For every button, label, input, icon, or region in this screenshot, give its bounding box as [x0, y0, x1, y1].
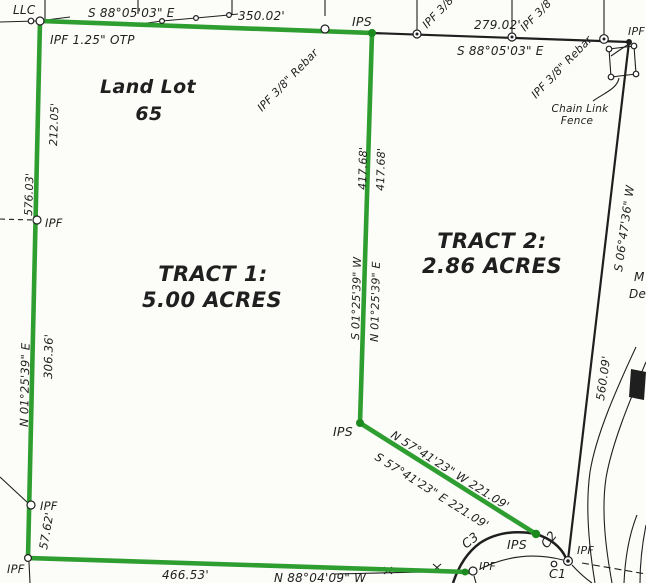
distance-306-label: 306.36' [41, 334, 56, 379]
distance-466-label: 466.53' [162, 568, 209, 582]
rebar-top-west-label: IPF 3/8" Rebar [255, 45, 322, 114]
bearing-left-label: N 01°25'39" E [17, 342, 33, 427]
curve-c2-label: C2 [538, 528, 560, 551]
chain-link-label-1: Chain Link [552, 103, 610, 115]
edge-text-m: M [634, 270, 645, 284]
bearing-bottom-label: N 88°04'09" W [274, 571, 367, 583]
ips-bottom-label: IPS [507, 537, 527, 552]
curve-c3-label: C3 [459, 529, 482, 551]
ipf-bottom-left-label: IPF [7, 562, 25, 576]
distance-5762-label: 57.62' [36, 511, 56, 550]
tract2-area: 2.86 ACRES [422, 254, 562, 278]
edge-text-de: De [629, 287, 646, 301]
distance-576-label: 576.03' [22, 173, 36, 216]
survey-plat-canvas: LLC S 88°05'03" E 350.02' IPF 1.25" OTP … [0, 0, 646, 583]
tract1-area: 5.00 ACRES [142, 288, 282, 312]
ipf-otp-label: IPF 1.25" OTP [50, 33, 135, 47]
distance-417-west-label: 417.68' [356, 147, 370, 190]
distance-top-west-label: 350.02' [238, 9, 285, 23]
adjoiner-llc-label: LLC [13, 3, 36, 17]
bearing-top-west-label: S 88°05'03" E [88, 6, 175, 20]
distance-top-east-label: 279.02' [474, 18, 521, 32]
curve-c1-label: C1 [549, 566, 566, 581]
ipf38-b-label: IPF 3/8 [518, 0, 554, 34]
ipf-curve-east-label: IPF [577, 544, 594, 557]
chain-link-label-2: Fence [561, 115, 593, 127]
tract2-name: TRACT 2: [437, 229, 547, 253]
plat-text: LLC S 88°05'03" E 350.02' IPF 1.25" OTP … [7, 0, 646, 583]
tract1-boundary [28, 21, 540, 576]
distance-212-label: 212.05' [47, 103, 61, 146]
structure-symbol [629, 369, 646, 400]
distance-417-east-label: 417.68' [374, 148, 388, 191]
bearing-middle-west-label: S 01°25'39" W [349, 256, 364, 340]
ipf-curve-west-label: IPF [479, 560, 496, 573]
rebar-top-east-label: IPF 3/8" Rebar [529, 32, 596, 101]
plat-drawing: LLC S 88°05'03" E 350.02' IPF 1.25" OTP … [0, 0, 646, 583]
ipf38-a-label: IPF 3/8 [420, 0, 456, 31]
land-lot-label: Land Lot [100, 76, 196, 98]
ips-top-label: IPS [352, 14, 372, 29]
land-lot-number: 65 [135, 103, 162, 125]
chain-link-fence-symbol [593, 43, 639, 101]
bearing-right-label: S 06°47'36" W [611, 184, 637, 273]
tract1-name: TRACT 1: [158, 262, 268, 286]
bearing-top-east-label: S 88°05'03" E [457, 44, 544, 58]
ipf-left-lower-label: IPF [40, 499, 58, 513]
ipf-top-corner-label: IPF [628, 25, 645, 38]
bearing-middle-east-label: N 01°25'39" E [368, 261, 383, 342]
distance-560-label: 560.09' [593, 355, 613, 402]
ips-middle-label: IPS [333, 424, 353, 439]
ipf-left-upper-label: IPF [45, 216, 63, 230]
